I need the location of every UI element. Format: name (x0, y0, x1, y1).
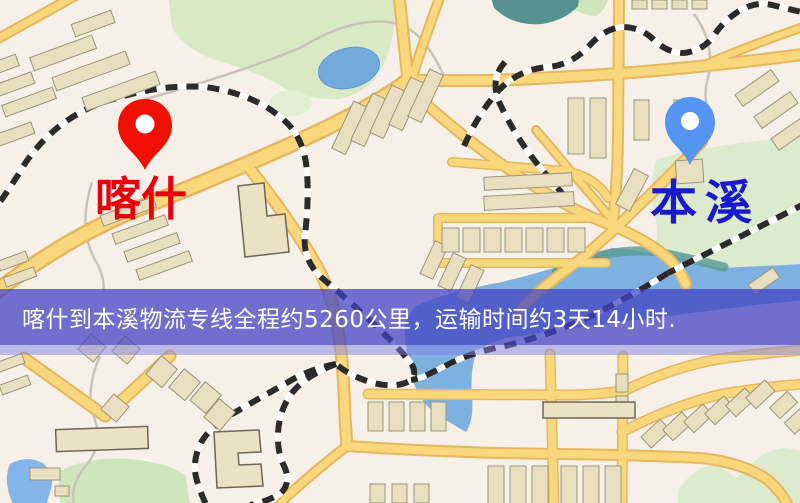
map-screenshot[interactable]: 喀什 本溪 喀什到本溪物流专线全程约5260公里，运输时间约3天14小时. (0, 0, 800, 503)
route-info-banner-extension (0, 345, 800, 355)
map-canvas[interactable]: 喀什 本溪 (0, 0, 800, 503)
destination-label: 本溪 (650, 176, 760, 231)
route-info-text: 喀什到本溪物流专线全程约5260公里，运输时间约3天14小时. (0, 300, 676, 334)
pin-center-dot (681, 112, 699, 130)
pond (7, 459, 52, 503)
pin-center-dot (136, 115, 155, 134)
route-info-banner: 喀什到本溪物流专线全程约5260公里，运输时间约3天14小时. (0, 289, 800, 345)
origin-label: 喀什 (95, 172, 187, 226)
